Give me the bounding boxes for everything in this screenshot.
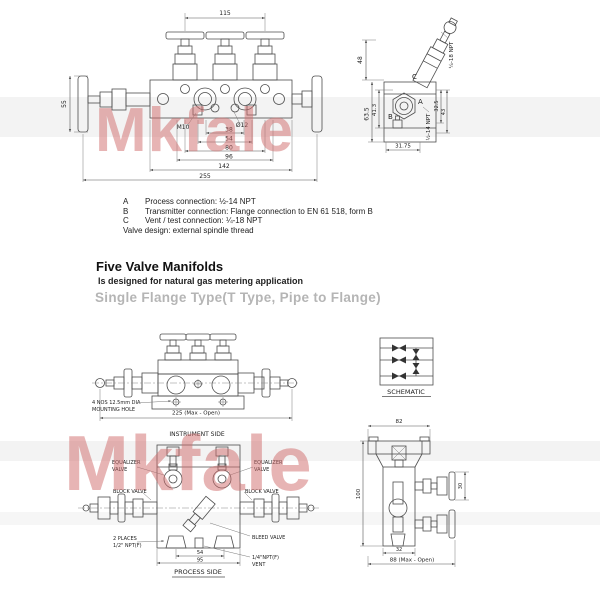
npt-quarter-label: ¼-18 NPT [449,41,455,68]
middle-front-view: 225 (Max - Open) 4 NOS 12.5mm DIA MOUNTI… [92,334,300,421]
bside-valve-1 [415,472,455,500]
dim-32-5-label: 32.5 [434,100,440,111]
section-subtitle: Is designed for natural gas metering app… [98,276,303,286]
dim-48-label: 48 [357,56,364,64]
legend-note: Valve design: external spindle thread [123,226,453,236]
vent-note-line2: VENT [252,562,266,568]
npt-half-label: ½-14 NPT [425,113,432,140]
d12-label: Ø12 [236,122,249,129]
schematic-label: SCHEMATIC [387,388,425,396]
legend-key-c: C [123,216,145,226]
dim-54-plan-label: 54 [197,550,203,556]
equalizer-right-line1: EQUALIZER [254,460,283,466]
mounting-note-line2: MOUNTING HOLE [92,407,135,413]
bleed-valve-label: BLEED VALVE [252,535,285,541]
dim-142-label: 142 [218,163,230,170]
vent-note-line1: 1/4"NPT(F) [252,555,279,561]
dim-38-label: 38 [225,127,233,134]
dim-225-label: 225 (Max - Open) [172,411,220,417]
bleed-valve-assembly [182,496,215,532]
legend-row-b: B Transmitter connection: Flange connect… [123,207,453,217]
legend-text-b: Transmitter connection: Flange connectio… [145,207,373,217]
dim-30-label: 30 [458,483,464,489]
valve-design-note: Valve design: external spindle thread [123,226,254,236]
dim-88-label: 88 (Max - Open) [390,558,435,564]
bside-valve-2 [415,510,455,538]
top-front-view: 115 [61,10,322,182]
dim-95-plan-label: 95 [197,558,203,564]
process-side-label: PROCESS SIDE [174,568,222,576]
port-b-label: B [388,113,393,121]
port-a-label: A [418,98,423,106]
valve-bonnets [173,39,277,80]
places-note-line2: 1/2" NPT(F) [113,543,142,549]
bottom-side-view: 82 30 100 [356,419,469,567]
legend-key-a: A [123,197,145,207]
equalizer-right-line2: VALVE [254,467,269,473]
dim-80-label: 80 [225,145,233,152]
dim-41-3-label: 41.3 [372,103,378,116]
dim-100-label: 100 [356,488,362,499]
connection-legend: A Process connection: ½-14 NPT B Transmi… [123,197,453,235]
dim-63-5-label: 63.5 [364,107,371,121]
plan-view: INSTRUMENT SIDE EQUALIZER VALVE [78,431,320,577]
legend-text-c: Vent / test connection: ¼-18 NPT [145,216,262,226]
legend-row-c: C Vent / test connection: ¼-18 NPT [123,216,453,226]
instrument-side-label: INSTRUMENT SIDE [169,431,225,438]
equalizer-left-line2: VALVE [112,467,127,473]
block-valve-right-label: BLOCK VALVE [245,489,279,495]
dim-31-75-label: 31.75 [395,144,411,150]
equalizer-left-line1: EQUALIZER [112,460,141,466]
schematic-symbol: SCHEMATIC [380,338,433,397]
dim-55-label: 55 [61,100,68,108]
dim-96-label: 96 [225,154,233,161]
places-note-line1: 2 PLACES [113,536,137,542]
top-side-view: C A B 48 63.5 41.3 31.75 32.5 43 ¼-18 NP… [357,16,461,153]
datasheet-page: 115 [0,0,600,600]
port-c-label: C [412,73,417,81]
right-side-valve [292,76,322,132]
section-title: Five Valve Manifolds [96,259,223,274]
mounting-note-line1: 4 NOS 12.5mm DIA [92,400,141,406]
dim-32-label: 32 [396,547,402,553]
block-valve-left-label: BLOCK VALVE [113,489,147,495]
legend-row-a: A Process connection: ½-14 NPT [123,197,453,207]
dim-115-label: 115 [219,10,231,17]
dim-255-label: 255 [199,173,211,180]
dim-82-label: 82 [396,419,403,425]
dimension-chain: 38 54 80 96 142 255 [83,120,317,182]
variant-heading: Single Flange Type(T Type, Pipe to Flang… [95,290,381,305]
left-side-valve [78,76,150,132]
middle-bonnets [165,340,231,360]
legend-key-b: B [123,207,145,217]
dim-43-label: 43 [441,109,447,115]
dim-54-label: 54 [225,136,233,143]
legend-text-a: Process connection: ½-14 NPT [145,197,256,207]
